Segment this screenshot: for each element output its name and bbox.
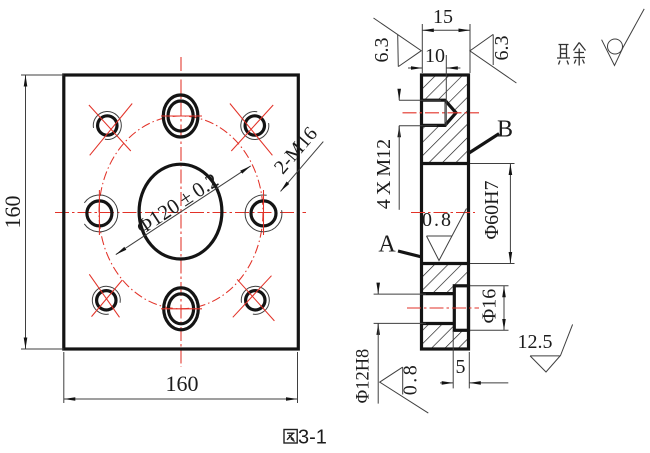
svg-text:10: 10 (425, 45, 445, 67)
svg-text:15: 15 (433, 6, 453, 28)
svg-text:6.3: 6.3 (491, 36, 513, 61)
svg-text:0.8: 0.8 (422, 209, 453, 231)
svg-text:160: 160 (166, 371, 199, 396)
svg-text:6.3: 6.3 (371, 38, 393, 63)
svg-text:5: 5 (456, 356, 466, 378)
svg-text:4 X M12: 4 X M12 (373, 139, 395, 209)
svg-text:A: A (378, 232, 396, 258)
svg-text:0.8: 0.8 (400, 363, 422, 396)
svg-text:Φ12H8: Φ12H8 (354, 349, 374, 404)
svg-text:Φ60H7: Φ60H7 (481, 180, 503, 239)
svg-text:160: 160 (0, 196, 25, 229)
svg-text:3-1: 3-1 (298, 427, 327, 449)
svg-text:12.5: 12.5 (518, 331, 553, 353)
svg-text:B: B (497, 117, 513, 143)
svg-text:Φ16: Φ16 (479, 289, 501, 324)
